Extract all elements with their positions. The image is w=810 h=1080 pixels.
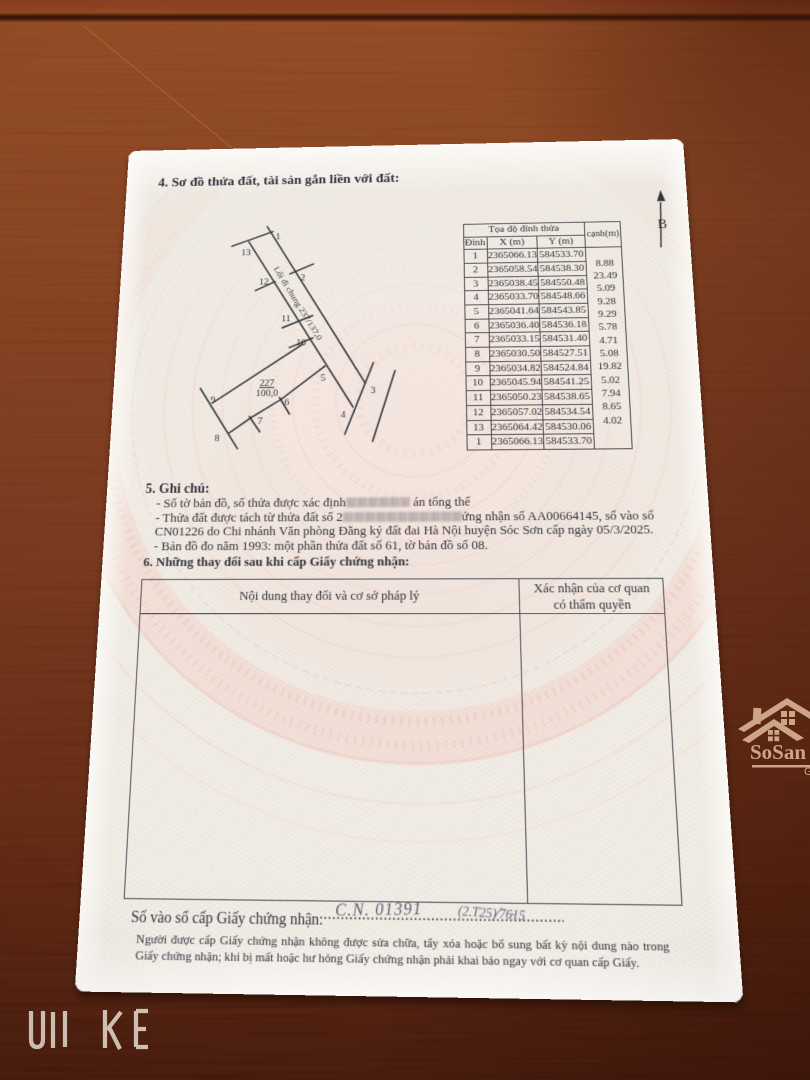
svg-text:11: 11 (281, 313, 291, 324)
svg-text:1: 1 (275, 231, 280, 241)
svg-text:12: 12 (259, 276, 269, 287)
svg-text:6: 6 (284, 396, 290, 407)
svg-text:227: 227 (259, 377, 275, 388)
svg-text:G: G (804, 766, 810, 778)
svg-text:7: 7 (257, 415, 263, 426)
svg-text:100,0: 100,0 (256, 388, 279, 399)
svg-text:SoSan: SoSan (750, 740, 806, 764)
svg-text:5: 5 (320, 372, 326, 383)
svg-text:B: B (657, 217, 667, 232)
svg-text:10: 10 (296, 337, 307, 348)
svg-text:8: 8 (214, 432, 220, 443)
svg-text:4: 4 (340, 409, 346, 420)
svg-text:13: 13 (241, 247, 252, 257)
svg-text:9: 9 (210, 394, 216, 405)
svg-text:2: 2 (300, 272, 305, 283)
svg-text:3: 3 (370, 384, 376, 395)
